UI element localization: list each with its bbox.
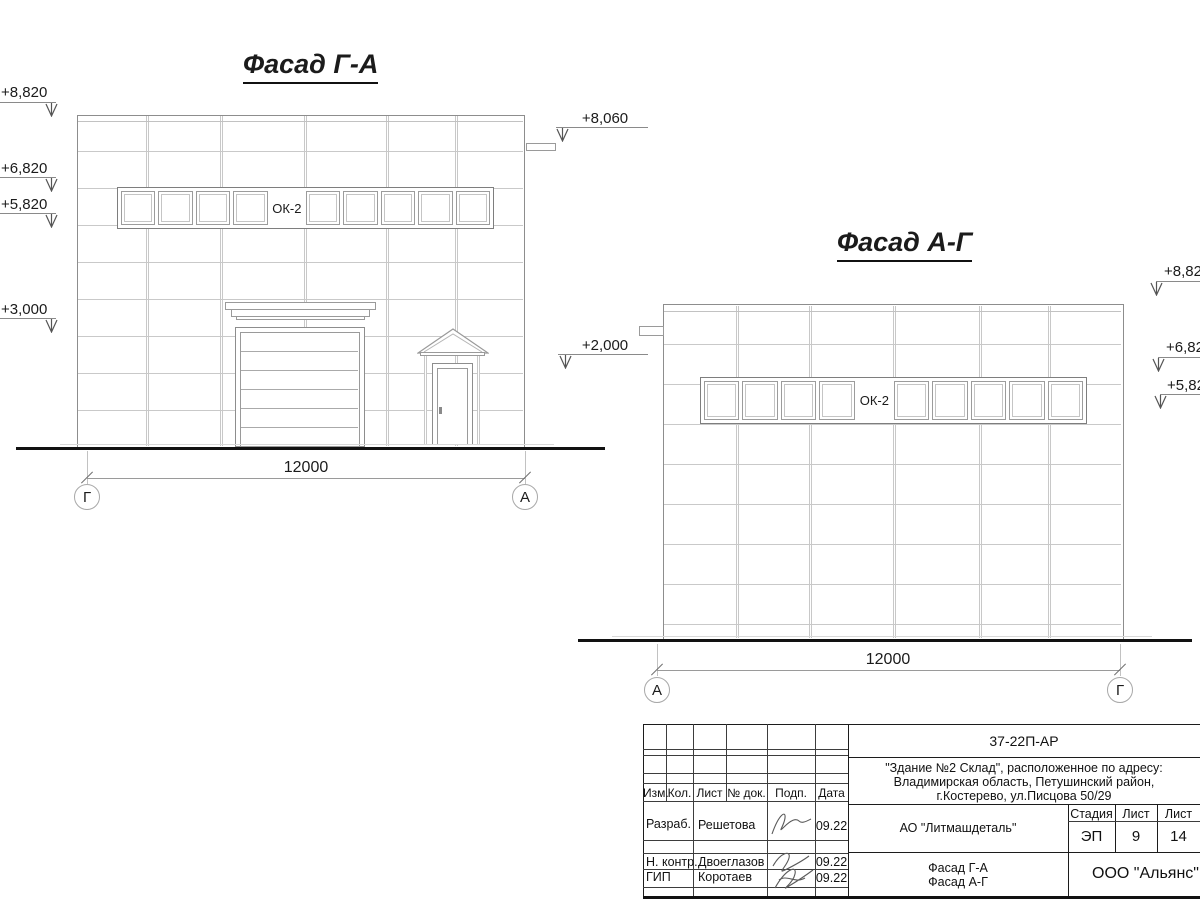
- tb-line: [1068, 821, 1200, 822]
- elevation-arrow-icon: [45, 178, 58, 192]
- porch-eave: [420, 352, 485, 356]
- tb-name: Решетова: [698, 818, 755, 832]
- tb-doc-number: 37-22П-АР: [848, 733, 1200, 749]
- elevation-label: +5,820: [1, 196, 43, 213]
- elevation-arrow-icon: [45, 319, 58, 333]
- tb-drawing-title-line1: Фасад Г-А: [848, 861, 1068, 875]
- window-pane: [971, 381, 1006, 420]
- elevation-label: +6,820: [1, 160, 43, 177]
- tb-line: [643, 749, 848, 750]
- tb-stage-label: Стадия: [1068, 807, 1115, 821]
- window-pane: [819, 381, 854, 420]
- window-band-label: ОК-2: [271, 191, 303, 225]
- facade-ga-title: Фасад Г-А: [243, 49, 378, 84]
- window-band: ОК-2: [700, 377, 1087, 424]
- ground-line: [16, 447, 605, 450]
- tb-date: 09.22: [815, 819, 848, 833]
- tb-line: [643, 783, 848, 784]
- axis-bubble: А: [512, 484, 538, 510]
- tb-line: [643, 801, 848, 802]
- signature-icon: [769, 808, 813, 838]
- tb-line: [848, 804, 1200, 805]
- tb-date: 09.22: [815, 871, 848, 885]
- tb-border: [643, 896, 1200, 899]
- tb-total-value: 14: [1157, 828, 1200, 845]
- window-pane: [121, 191, 155, 225]
- tb-drawing-title-line2: Фасад А-Г: [848, 875, 1068, 889]
- roof-drain-box: [639, 326, 664, 336]
- window-pane: [306, 191, 340, 225]
- tb-sheet-value: 9: [1115, 828, 1157, 845]
- tb-role: ГИП: [646, 870, 671, 884]
- blind-area-line: [612, 636, 1152, 637]
- elevation-arrow-icon: [45, 103, 58, 117]
- tb-col-data: Дата: [815, 786, 848, 800]
- ground-line: [578, 639, 1192, 642]
- tb-name: Двоеглазов: [698, 855, 764, 869]
- window-pane: [781, 381, 816, 420]
- elevation-arrow-icon: [1150, 282, 1163, 296]
- porch-post: [477, 356, 480, 444]
- tb-line: [848, 852, 1200, 853]
- window-band: ОК-2: [117, 187, 494, 229]
- door-handle: [439, 407, 442, 414]
- tb-line: [643, 773, 848, 774]
- axis-bubble: А: [644, 677, 670, 703]
- window-pane: [381, 191, 415, 225]
- window-pane: [742, 381, 777, 420]
- elevation-label: +3,000: [1, 301, 43, 318]
- window-pane: [343, 191, 377, 225]
- axis-bubble: Г: [74, 484, 100, 510]
- tb-client: АО "Литмашдеталь": [848, 821, 1068, 835]
- elevation-label: +8,82: [1164, 263, 1200, 280]
- elevation-arrow-icon: [1154, 395, 1167, 409]
- elevation-label: +8,060: [563, 110, 647, 127]
- tb-line: [643, 840, 848, 841]
- elevation-arrow-icon: [1152, 358, 1165, 372]
- window-band-panes: ОК-2: [118, 188, 493, 228]
- title-block: Изм. Кол. Лист № док. Подп. Дата Разраб.…: [643, 724, 1200, 900]
- elevation-leader: [556, 127, 648, 128]
- axis-bubble: Г: [1107, 677, 1133, 703]
- tb-line: [848, 757, 1200, 758]
- dimension-line: [657, 670, 1120, 671]
- tb-name: Коротаев: [698, 870, 752, 884]
- facade-ag-outline: [663, 304, 1124, 641]
- window-pane: [894, 381, 929, 420]
- tb-role: Н. контр.: [646, 855, 698, 869]
- elevation-label: +2,000: [565, 337, 645, 354]
- tb-role: Разраб.: [646, 817, 691, 831]
- gate-slat-line: [241, 427, 358, 428]
- drawing-sheet: Фасад Г-А ОК-2: [0, 0, 1200, 900]
- blind-area-line: [60, 444, 554, 445]
- extension-line: [87, 451, 88, 484]
- window-pane: [704, 381, 739, 420]
- gate-slat-line: [241, 351, 358, 352]
- facade-ag-title: Фасад А-Г: [837, 227, 972, 262]
- dimension-text: 12000: [276, 459, 336, 477]
- window-pane: [196, 191, 230, 225]
- tb-col-podp: Подп.: [767, 786, 815, 800]
- window-pane: [1009, 381, 1044, 420]
- gate-canopy: [236, 316, 365, 320]
- elevation-arrow-icon: [559, 355, 572, 369]
- tb-col-izm: Изм.: [643, 786, 666, 800]
- tb-line: [643, 755, 848, 756]
- window-pane: [158, 191, 192, 225]
- tb-address-line3: г.Костерево, ул.Писцова 50/29: [848, 789, 1200, 803]
- roof-drain-box: [526, 143, 556, 151]
- window-pane: [233, 191, 267, 225]
- porch-post: [424, 356, 427, 444]
- tb-col-kol: Кол.: [666, 786, 693, 800]
- elevation-arrow-icon: [45, 214, 58, 228]
- elevation-arrow-icon: [556, 128, 569, 142]
- elevation-label: +6,82: [1166, 339, 1200, 356]
- extension-line: [657, 644, 658, 676]
- gate-slat-line: [241, 389, 358, 390]
- window-band-panes: ОК-2: [701, 378, 1086, 423]
- tb-address-line1: "Здание №2 Склад", расположенное по адре…: [848, 761, 1200, 775]
- tb-stage-value: ЭП: [1068, 828, 1115, 845]
- window-pane: [1048, 381, 1083, 420]
- tb-total-label: Лист: [1157, 807, 1200, 821]
- elevation-label: +5,82: [1167, 377, 1200, 394]
- tb-address-line2: Владимирская область, Петушинский район,: [848, 775, 1200, 789]
- tb-date: 09.22: [815, 855, 848, 869]
- tb-line: [643, 887, 848, 888]
- window-pane: [418, 191, 452, 225]
- window-band-label: ОК-2: [858, 381, 891, 420]
- tb-col-doc: № док.: [726, 786, 767, 800]
- dimension-line: [87, 478, 525, 479]
- tb-line: [643, 853, 848, 854]
- window-pane: [932, 381, 967, 420]
- extension-line: [525, 451, 526, 484]
- signature-icon: [767, 850, 815, 894]
- window-pane: [456, 191, 490, 225]
- gate-slat-line: [241, 408, 358, 409]
- extension-line: [1120, 644, 1121, 676]
- elevation-label: +8,820: [1, 84, 43, 101]
- tb-col-list: Лист: [693, 786, 726, 800]
- tb-org: ООО "Альянс": [1068, 865, 1200, 883]
- tb-sheet-label: Лист: [1115, 807, 1157, 821]
- door-gable: [417, 328, 489, 354]
- gate-slat-line: [241, 370, 358, 371]
- dimension-text: 12000: [858, 651, 918, 669]
